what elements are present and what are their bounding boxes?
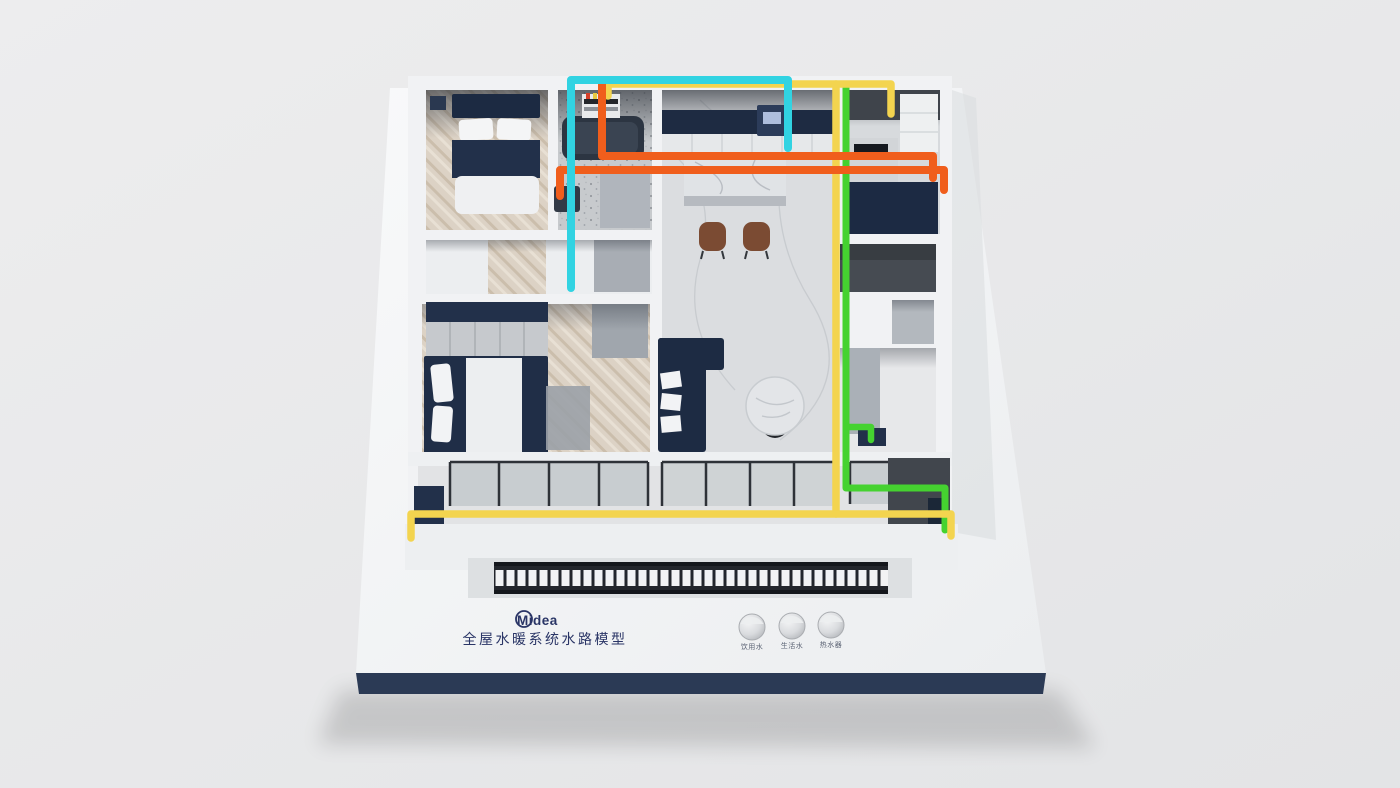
shade-niche [892,300,934,312]
kitchen-island [684,156,786,206]
manifold-port-red [586,93,590,99]
shade-storage [840,244,936,260]
model-render: Midea 全屋水暖系统水路模型 饮用水 生活水 热水器 [0,0,1400,788]
knob-label: 饮用水 [741,642,764,651]
bed-second [424,356,548,458]
louver-vent [494,562,888,594]
knob-water-heater: 热水器 [818,612,844,649]
brand-text: Midea [517,613,558,628]
control-knobs: 饮用水 生活水 热水器 [739,612,844,651]
kitchen2-wall-cabinets [900,94,938,152]
scene: Midea 全屋水暖系统水路模型 饮用水 生活水 热水器 [0,0,1400,788]
glass-doors [450,462,938,506]
manifold-port-yellow [593,93,597,99]
balcony-planter [414,486,444,524]
kitchen-counter-back [662,110,838,134]
base-shadow [318,690,1096,748]
utility-marble-column [846,348,880,434]
knob-label: 热水器 [820,640,843,649]
shade-hallway [426,240,652,252]
knob-label: 生活水 [781,641,804,650]
knob-domestic-water: 生活水 [779,613,805,650]
nightstand [430,96,446,110]
midea-logo: Midea [516,611,558,628]
shower-marble-block [600,166,650,228]
kitchen2-lower-cabinets [848,182,938,234]
knob-drinking-water: 饮用水 [739,614,765,651]
model-title: 全屋水暖系统水路模型 [463,631,628,647]
base-front-edge [356,673,1046,694]
rug [546,386,590,450]
